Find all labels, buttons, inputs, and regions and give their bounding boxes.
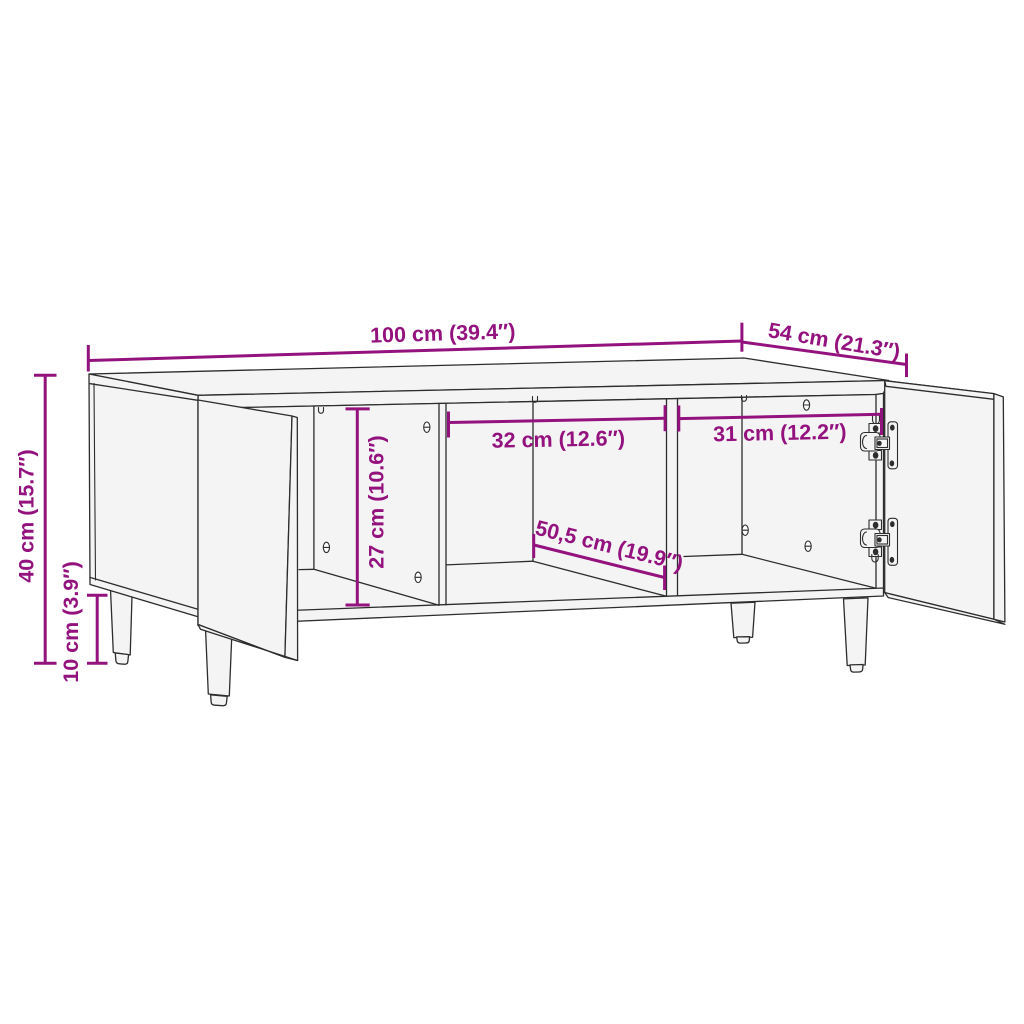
svg-text:32 cm (12.6″): 32 cm (12.6″) bbox=[491, 426, 625, 453]
svg-text:31 cm (12.2″): 31 cm (12.2″) bbox=[713, 420, 847, 447]
svg-text:10 cm (3.9″): 10 cm (3.9″) bbox=[59, 561, 83, 682]
svg-text:40 cm (15.7″): 40 cm (15.7″) bbox=[15, 449, 39, 582]
svg-text:27 cm (10.6″): 27 cm (10.6″) bbox=[365, 435, 389, 568]
svg-text:100 cm (39.4″): 100 cm (39.4″) bbox=[370, 319, 516, 347]
